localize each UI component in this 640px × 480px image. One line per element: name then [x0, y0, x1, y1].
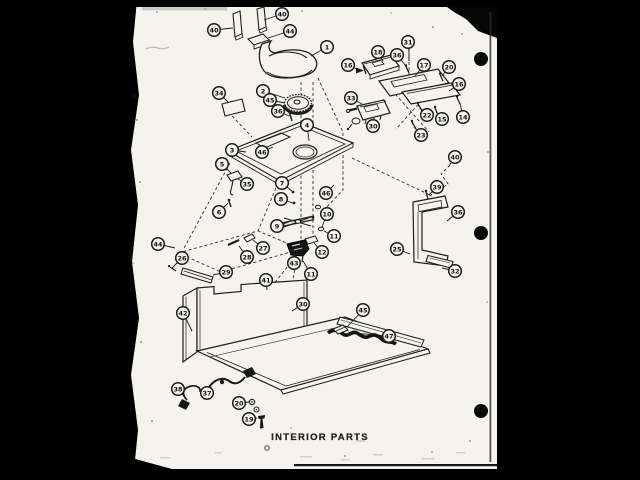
svg-text:7: 7 — [280, 179, 285, 187]
svg-text:39: 39 — [432, 183, 442, 191]
punch-hole-bottom — [474, 404, 488, 418]
callout-15: 15 — [436, 113, 449, 126]
svg-text:37: 37 — [202, 389, 211, 397]
svg-text:38: 38 — [173, 385, 183, 393]
svg-text:43: 43 — [289, 259, 298, 267]
svg-text:44: 44 — [153, 240, 163, 248]
svg-text:33: 33 — [346, 94, 355, 102]
bottom-rule — [294, 464, 497, 466]
callout-43: 43 — [288, 257, 301, 270]
svg-text:45: 45 — [358, 306, 368, 314]
svg-text:45: 45 — [265, 96, 275, 104]
parts-diagram-svg: 4040441342453643465356784691011124311442… — [0, 0, 640, 480]
svg-text:27: 27 — [258, 244, 267, 252]
svg-text:10: 10 — [322, 210, 332, 218]
cabinet-left-wall — [183, 288, 197, 362]
svg-text:36: 36 — [453, 208, 463, 216]
svg-text:44: 44 — [285, 27, 295, 35]
svg-text:29: 29 — [221, 268, 231, 276]
callout-30: 30 — [367, 119, 380, 132]
svg-text:30: 30 — [368, 122, 378, 130]
svg-text:15: 15 — [437, 115, 447, 123]
punch-hole-top — [474, 52, 488, 66]
svg-text:36: 36 — [392, 51, 402, 59]
page-edge-line — [490, 12, 492, 462]
svg-text:40: 40 — [277, 10, 287, 18]
svg-text:5: 5 — [220, 160, 225, 168]
svg-text:36: 36 — [273, 107, 283, 115]
svg-text:31: 31 — [403, 38, 413, 46]
svg-text:46: 46 — [321, 189, 331, 197]
svg-text:20: 20 — [444, 63, 454, 71]
svg-text:6: 6 — [217, 208, 222, 216]
svg-text:1: 1 — [325, 43, 330, 51]
callout-22: 22 — [420, 108, 433, 121]
svg-text:40: 40 — [209, 26, 219, 34]
svg-text:32: 32 — [450, 267, 459, 275]
actuator-33 — [352, 118, 360, 124]
svg-text:8: 8 — [279, 195, 284, 203]
svg-text:18: 18 — [373, 48, 383, 56]
callout-37: 37 — [201, 386, 214, 399]
svg-text:17: 17 — [419, 61, 428, 69]
svg-text:23: 23 — [416, 131, 425, 139]
svg-text:30: 30 — [298, 300, 308, 308]
svg-text:34: 34 — [214, 89, 224, 97]
svg-text:4: 4 — [305, 121, 310, 129]
svg-text:2: 2 — [261, 87, 266, 95]
svg-text:16: 16 — [454, 80, 464, 88]
svg-text:42: 42 — [178, 309, 187, 317]
svg-text:11: 11 — [306, 270, 316, 278]
svg-text:28: 28 — [242, 253, 252, 261]
svg-text:11: 11 — [329, 232, 339, 240]
svg-text:40: 40 — [450, 153, 460, 161]
svg-text:20: 20 — [234, 399, 244, 407]
svg-text:35: 35 — [242, 180, 252, 188]
scanned-manual-page: 4040441342453643465356784691011124311442… — [0, 0, 640, 480]
svg-text:25: 25 — [392, 245, 402, 253]
svg-text:14: 14 — [458, 113, 468, 121]
svg-text:22: 22 — [422, 111, 431, 119]
svg-text:26: 26 — [177, 254, 187, 262]
svg-text:12: 12 — [317, 248, 326, 256]
svg-text:19: 19 — [244, 415, 254, 423]
svg-text:3: 3 — [230, 146, 235, 154]
svg-text:41: 41 — [261, 276, 271, 284]
svg-text:46: 46 — [257, 148, 267, 156]
svg-text:16: 16 — [343, 61, 353, 69]
punch-hole-middle — [474, 226, 488, 240]
svg-text:9: 9 — [275, 222, 280, 230]
diagram-title: INTERIOR PARTS — [271, 432, 369, 443]
svg-text:47: 47 — [384, 332, 393, 340]
